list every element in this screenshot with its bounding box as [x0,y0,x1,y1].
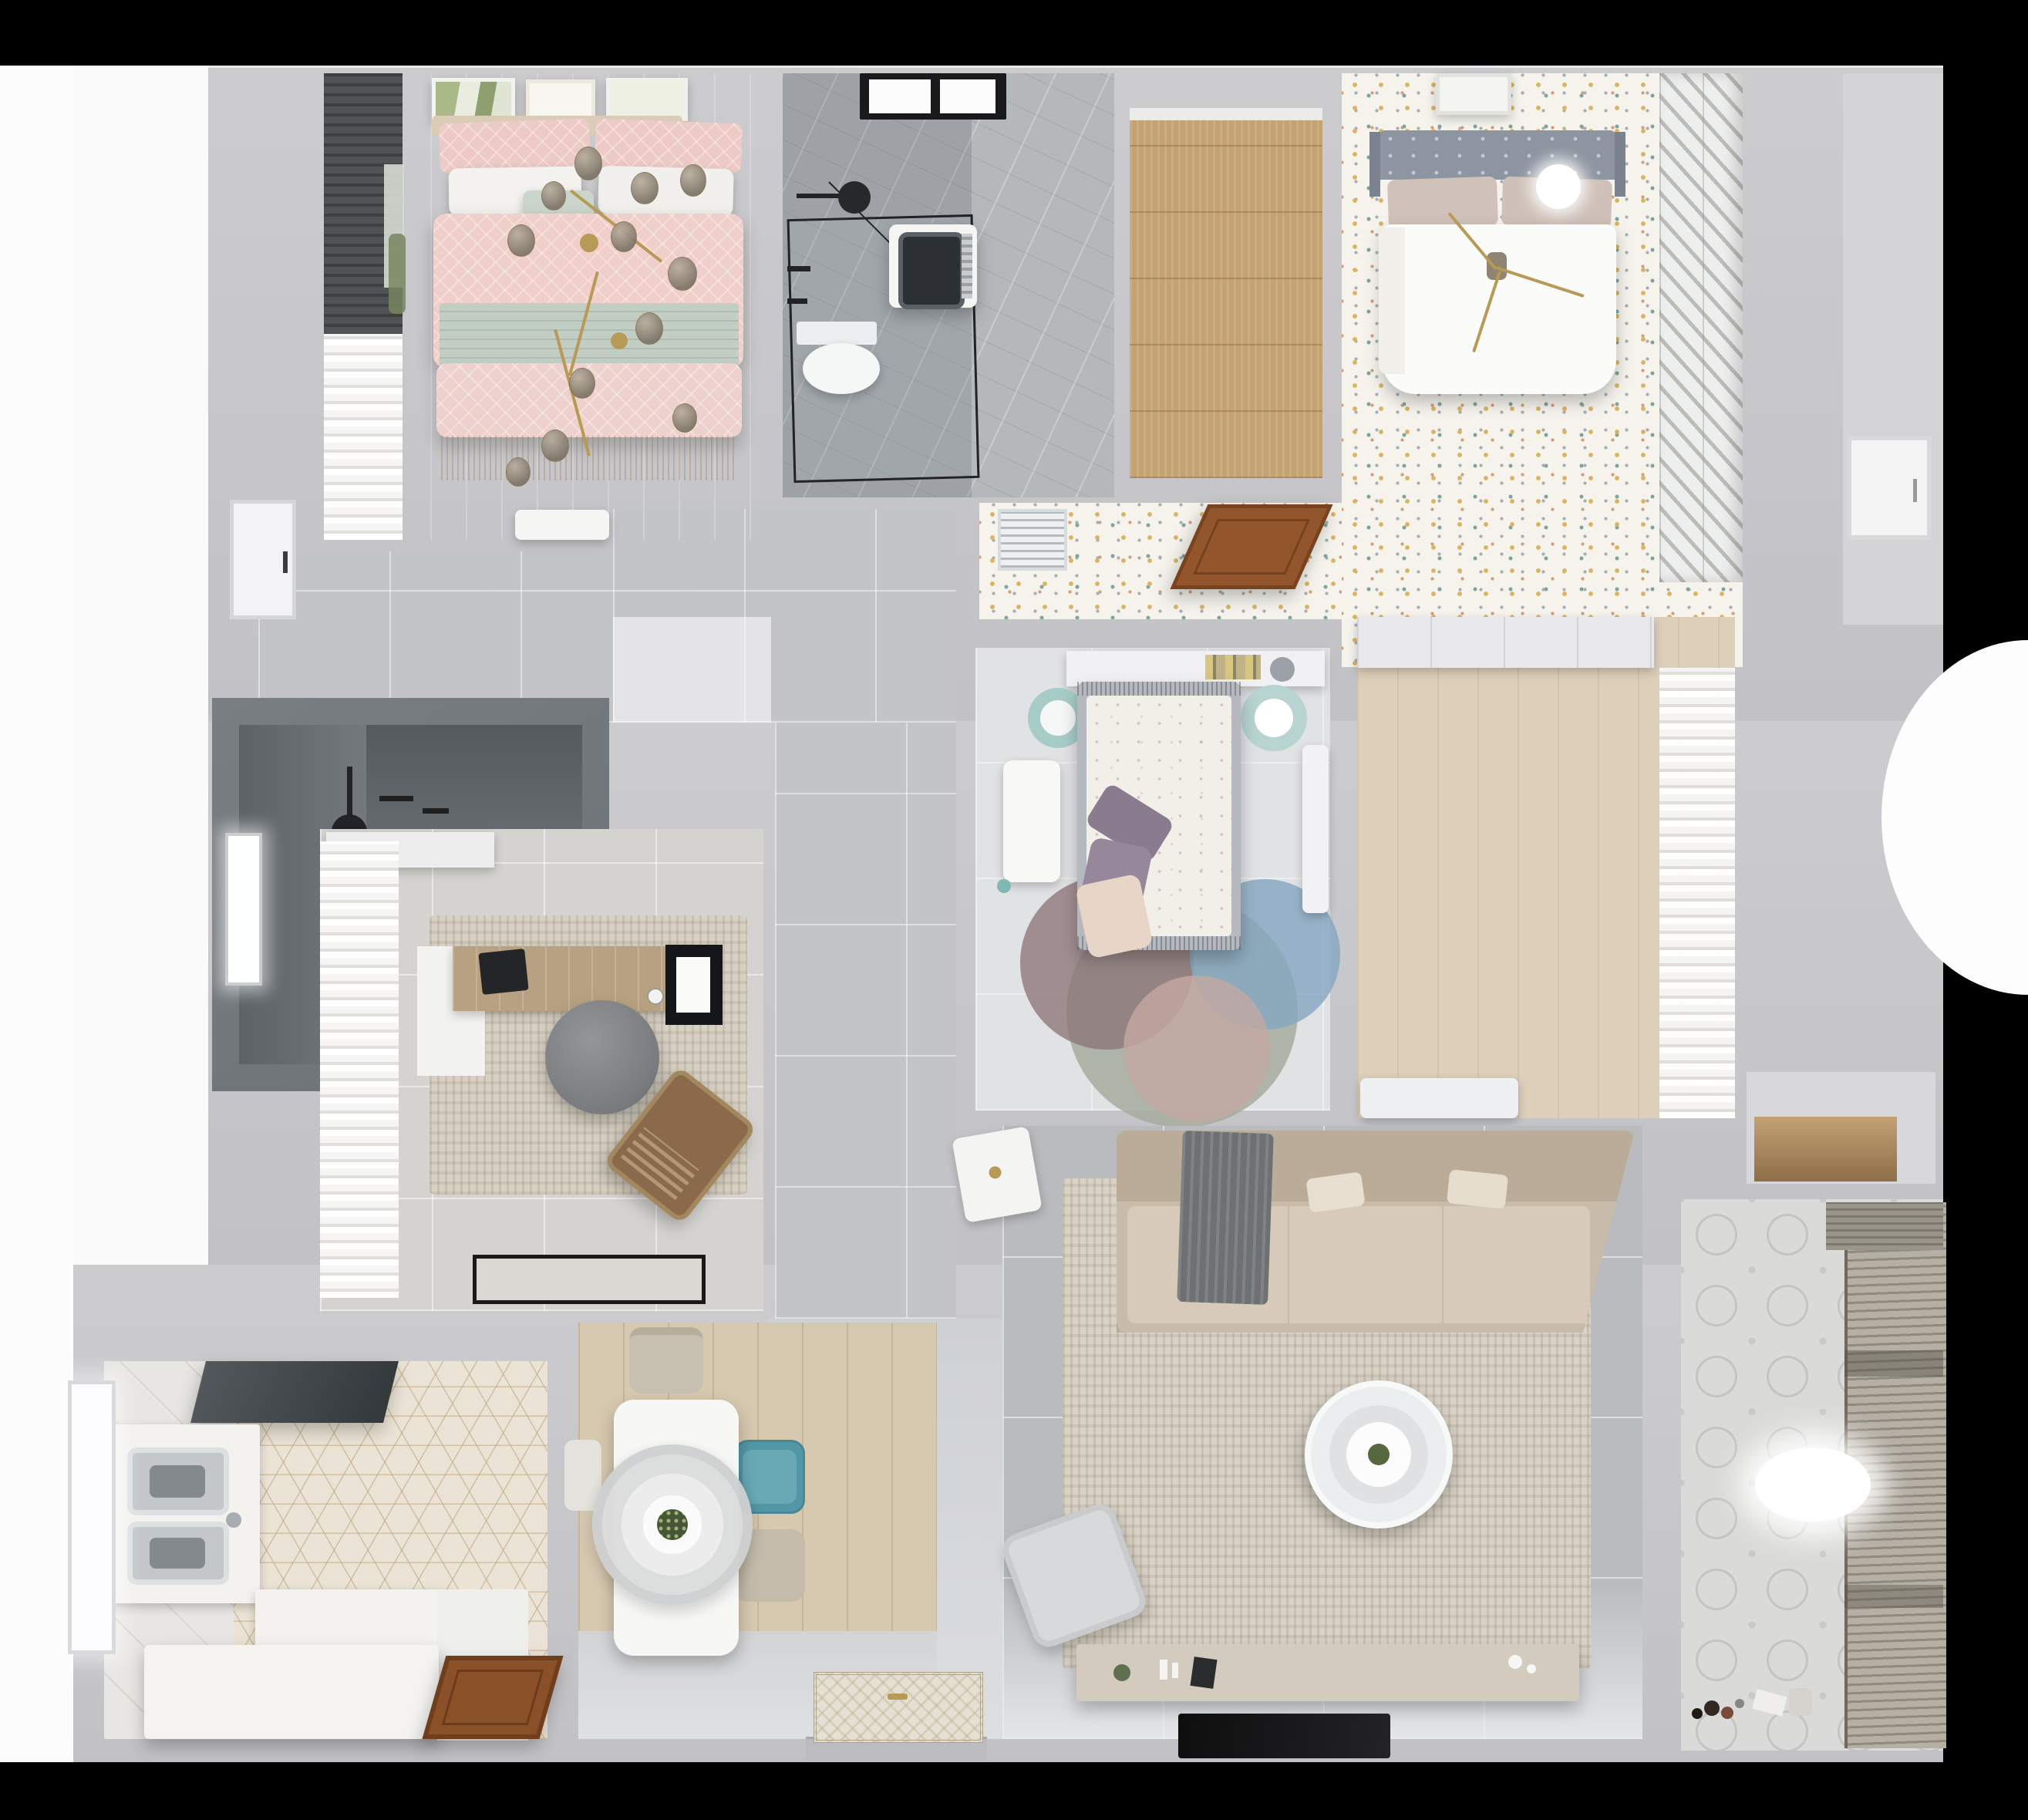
headboard-wing [1615,132,1625,197]
blind-stack-top [1826,1202,1943,1250]
fridge-dark [190,1361,399,1423]
towel-bar-2 [423,808,449,814]
kitchen-door-wood [423,1656,564,1739]
gold-keys [888,1694,908,1700]
door-panel-inset [442,1670,544,1725]
room-kitchen [104,1361,547,1739]
window-bright [225,833,262,986]
picture-frame-sprig [606,78,688,121]
white-pillow-right [598,166,734,217]
candle [1160,1660,1167,1680]
glass-globe [506,457,531,487]
glass-globe [631,172,659,204]
tv-console [1076,1644,1579,1701]
toy [1692,1708,1703,1719]
entry-doormat [814,1672,983,1743]
blind-band [1844,1585,1943,1608]
room-dressing [1357,617,1735,1118]
room-closet-wood [1130,108,1322,478]
light-glare [1536,164,1581,209]
picture-frame-white [526,79,595,120]
fringe-top [1077,682,1241,696]
window-pane [869,79,931,113]
toilet-bowl [803,343,880,394]
room-dining [578,1323,937,1631]
outside-white-left [0,66,73,1762]
wardrobe-white [1302,745,1329,913]
sheer-curtain [1659,668,1735,1118]
door-handle [283,551,288,573]
door-left-vestibule [230,500,296,619]
side-table-white [952,1126,1043,1223]
sheet-flap [1379,228,1405,374]
sofa [1117,1131,1635,1333]
rug-circle-blush [1123,976,1270,1122]
pendant-lamp [592,1444,753,1605]
glass-globe [680,164,706,197]
vase [1527,1664,1536,1673]
sofa-pillow [1447,1169,1508,1209]
ac-vent-grille [998,509,1067,571]
stool-teal-right [1241,685,1307,751]
niche-wood-shelf [1754,1117,1897,1181]
bed-headboard-gray [1379,130,1616,180]
green-plate [1113,1664,1130,1681]
sink-basin [127,1522,229,1585]
room-bathroom-main [783,73,1114,497]
chair-beige-top [629,1327,703,1394]
plate [1270,657,1295,682]
room-study [320,829,763,1311]
kitchen-window [68,1380,116,1654]
paper-sheet [1752,1689,1787,1716]
study-curtain [320,841,399,1298]
washing-machine [889,224,977,308]
glass-globe [541,430,569,462]
shower-valve [787,298,807,304]
outside-white-left-mid [73,66,208,1265]
blanket-sage-band [440,303,739,368]
table-plant [1368,1444,1390,1465]
rug-fringe [441,436,736,480]
room-hallway-h1 [613,509,956,723]
vase [1508,1655,1522,1669]
skylight-window [860,73,1006,120]
mug [647,988,664,1005]
study-doormat [473,1255,706,1304]
bed-frame [1077,682,1241,950]
glass-globe [541,181,566,211]
blind-band [1844,1350,1943,1377]
sink-inner [150,1538,205,1569]
room-hallway-h2 [775,723,956,1319]
duvet-white [1382,224,1616,394]
room-bedroom-second [975,648,1330,1111]
chandelier-knot-2 [611,332,628,349]
picture-frame-leaf [432,78,515,121]
louvered-wardrobe [1659,73,1743,582]
storage-niche [1747,1072,1935,1184]
chandelier-knot [580,234,598,252]
toy [1735,1699,1744,1708]
candle [1172,1663,1178,1678]
tv-flat-panel [1178,1714,1390,1758]
coffee-table [1305,1380,1453,1528]
pillow-beige [1387,177,1498,230]
shower-stem [347,767,352,819]
faucet [226,1512,241,1528]
ceiling-edge [1130,108,1322,120]
light-glare [1755,1448,1871,1522]
door-handle [1913,479,1917,502]
sink-basin [127,1448,229,1515]
glass-globe [569,368,595,399]
door-panel-inset [1193,519,1310,575]
laptop [478,949,528,995]
glass-globe [611,221,637,252]
chair-teal-seat [743,1450,797,1504]
washer-drum [898,232,965,309]
glass-globe [507,224,535,257]
pink-pillow-left [439,119,591,174]
towel-bar [379,796,413,801]
watering-can [1789,1688,1812,1716]
open-wood-door [1171,504,1333,589]
window-pane [940,79,995,113]
low-cabinet [1360,1078,1518,1118]
shower-head [838,181,871,214]
glass-globe [668,257,697,291]
shower-valve [787,266,810,271]
picture-frame [1436,73,1511,115]
sink-inner [150,1465,205,1498]
desk-white [1003,760,1060,882]
toy [1721,1707,1733,1719]
plant-glimpse [389,234,406,314]
washer-panel [962,234,972,298]
door-right-frame [1847,436,1932,540]
pendant-plant [657,1509,688,1540]
photo-frame [1191,1657,1218,1689]
room-hallway-vestibule [258,551,613,723]
room-balcony [1681,1199,1943,1751]
headboard-wing [1369,132,1380,197]
toy [1704,1700,1720,1716]
office-chair-gray [545,1000,659,1114]
closet-band [1357,617,1654,668]
monitor-screen [676,957,710,1013]
teal-bottle [997,879,1011,893]
decor-gold [988,1165,1002,1180]
glass-globe [635,312,663,345]
wall-lighter-right [1843,73,1943,625]
monitor [665,945,723,1025]
glass-globe [672,403,697,433]
white-curtain-left [324,334,403,540]
pink-pillow-right [595,119,743,174]
island [144,1645,439,1739]
room-bedroom-pink [324,73,756,540]
lit-wall-glow [613,617,771,723]
room-master-bedroom [1342,73,1743,667]
toilet-tank [797,322,877,345]
gray-throw [1177,1131,1274,1305]
floorplan-stage [0,0,2028,1820]
books-stack [1205,655,1261,679]
room-living [1002,1126,1642,1739]
nightstand [515,510,609,540]
room-master-corridor [979,503,1342,619]
glass-globe [574,147,602,180]
